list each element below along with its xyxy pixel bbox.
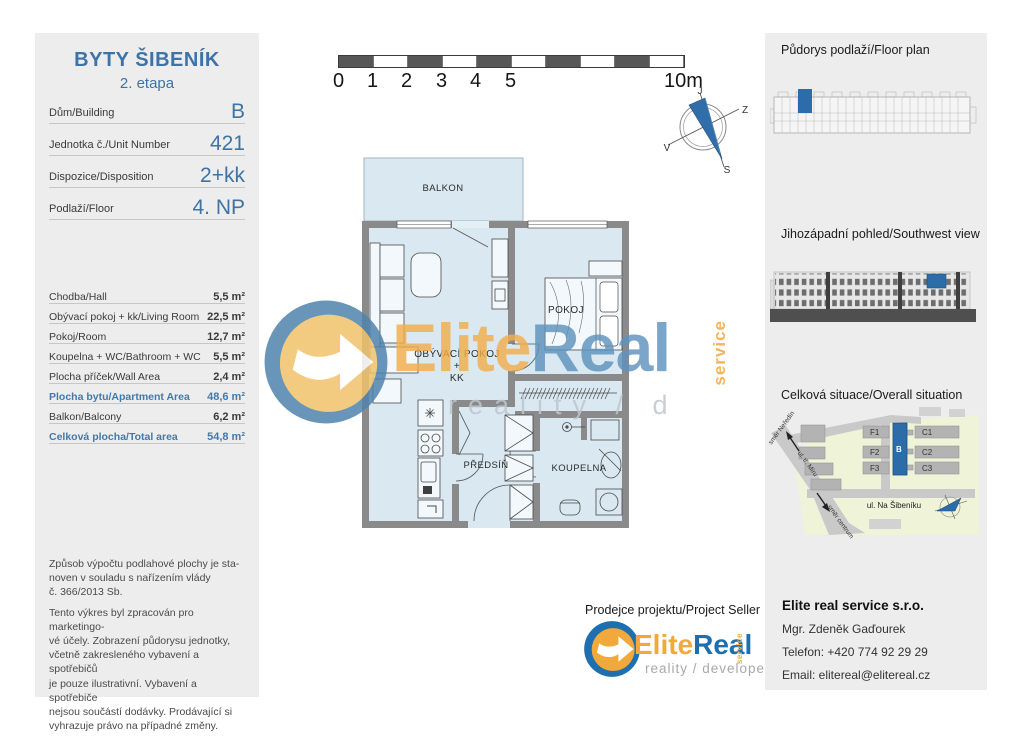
brand-elite: Elite — [634, 629, 693, 660]
contact-company: Elite real service s.r.o. — [782, 598, 930, 613]
info-row-building: Dům/Building B — [49, 101, 245, 124]
disclaimer-paragraph: Způsob výpočtu podlahové plochy je sta- … — [49, 557, 247, 599]
section-title-floor-plan: Půdorys podlaží/Floor plan — [781, 43, 930, 57]
room-label-kk: KK — [450, 373, 464, 384]
area-value: 5,5 m² — [213, 351, 245, 363]
building-label-c1: C1 — [922, 428, 933, 437]
legal-disclaimer: Způsob výpočtu podlahové plochy je sta- … — [49, 557, 247, 740]
site-map: F1 F2 F3 C1 C2 C3 B ul. Na Šibeníku směr… — [769, 405, 981, 557]
scale-bar-segments — [338, 55, 685, 68]
info-label: Dispozice/Disposition — [49, 171, 154, 186]
building-label-f2: F2 — [870, 448, 880, 457]
building-label-c2: C2 — [922, 448, 933, 457]
watermark-service: service — [710, 320, 730, 386]
area-value: 12,7 m² — [207, 331, 245, 343]
table-row-total-area: Celková plocha/Total area 54,8 m² — [49, 424, 245, 444]
coffee-table — [411, 253, 441, 297]
building-label-f3: F3 — [870, 464, 880, 473]
room-label-plus: + — [454, 361, 460, 372]
table-row: Balkon/Balcony 6,2 m² — [49, 404, 245, 424]
disclaimer-paragraph: Tento výkres byl zpracován pro marketing… — [49, 606, 247, 733]
apartment-floor-plan: BALKON OBÝVACÍ POKOJ + KK POKOJ PŘEDSÍŇ … — [353, 149, 643, 534]
room-label-bedroom: POKOJ — [548, 305, 584, 316]
scale-tick: 1 — [367, 70, 378, 93]
compass-label-west: Z — [742, 105, 748, 116]
compass-rose-icon: J Z V S — [660, 85, 755, 190]
contact-phone: Telefon: +420 774 92 29 29 — [782, 645, 930, 659]
seller-heading: Prodejce projektu/Project Seller — [585, 603, 760, 617]
scale-bar: 0 1 2 3 4 5 10m — [338, 55, 685, 95]
brand-tagline: reality / developer — [645, 661, 771, 676]
location-panel: Půdorys podlaží/Floor plan Jihozápadní p… — [765, 33, 987, 690]
stove-icon — [425, 408, 435, 418]
shelf — [589, 261, 622, 276]
seller-brand: EliteReal service — [634, 631, 752, 659]
room-label-hall: PŘEDSÍŇ — [463, 460, 508, 471]
info-value: 421 — [210, 133, 245, 154]
info-value: B — [231, 101, 245, 122]
info-row-disposition: Dispozice/Disposition 2+kk — [49, 165, 245, 188]
scale-tick: 5 — [505, 70, 516, 93]
building-label-c3: C3 — [922, 464, 933, 473]
scale-tick: 4 — [470, 70, 481, 93]
compass-label-south: J — [698, 86, 703, 97]
info-row-floor: Podlaží/Floor 4. NP — [49, 197, 245, 220]
room-label-balcony: BALKON — [423, 183, 464, 194]
table-row: Plocha příček/Wall Area 2,4 m² — [49, 364, 245, 384]
scale-tick: 2 — [401, 70, 412, 93]
info-label: Dům/Building — [49, 107, 114, 122]
contact-block: Elite real service s.r.o. Mgr. Zdeněk Ga… — [782, 598, 930, 691]
unit-info-panel: BYTY ŠIBENÍK 2. etapa Dům/Building B Jed… — [35, 33, 259, 697]
info-label: Podlaží/Floor — [49, 203, 114, 218]
sink-tap — [423, 486, 432, 494]
area-label: Celková plocha/Total area — [49, 431, 178, 443]
info-row-unit-number: Jednotka č./Unit Number 421 — [49, 133, 245, 156]
area-value: 5,5 m² — [213, 291, 245, 303]
tv-cabinet — [492, 239, 508, 309]
area-value: 6,2 m² — [213, 411, 245, 423]
area-value: 54,8 m² — [207, 431, 245, 443]
building-label-b: B — [896, 445, 902, 454]
contact-person: Mgr. Zdeněk Gaďourek — [782, 622, 930, 636]
area-label: Koupelna + WC/Bathroom + WC — [49, 351, 201, 363]
highlighted-unit-marker — [927, 274, 946, 288]
area-label: Pokoj/Room — [49, 331, 106, 343]
info-value: 2+kk — [200, 165, 245, 186]
contact-email: Email: elitereal@elitereal.cz — [782, 668, 930, 682]
scale-tick: 0 — [333, 70, 344, 93]
area-value: 22,5 m² — [207, 311, 245, 323]
room-label-bathroom: KOUPELNA — [552, 463, 607, 474]
area-label: Plocha příček/Wall Area — [49, 371, 160, 383]
table-row: Pokoj/Room 12,7 m² — [49, 324, 245, 344]
area-value: 48,6 m² — [207, 391, 245, 403]
compass-label-east: V — [664, 143, 671, 154]
street-label: ul. Na Šibeníku — [867, 501, 921, 510]
table-row: Chodba/Hall 5,5 m² — [49, 284, 245, 304]
scale-bar-ticks: 0 1 2 3 4 5 10m — [338, 68, 685, 92]
area-label: Obývací pokoj + kk/Living Room — [49, 311, 199, 323]
scale-tick: 3 — [436, 70, 447, 93]
building-storey-diagram — [770, 81, 980, 147]
room-label-living: OBÝVACÍ POKOJ — [414, 347, 500, 360]
section-title-southwest-view: Jihozápadní pohled/Southwest view — [781, 227, 980, 241]
brand-service: service — [736, 633, 744, 664]
area-label: Balkon/Balcony — [49, 411, 121, 423]
table-row-apartment-area: Plocha bytu/Apartment Area 48,6 m² — [49, 384, 245, 404]
page-subtitle: 2. etapa — [49, 75, 245, 92]
page-title: BYTY ŠIBENÍK — [49, 49, 245, 72]
info-value: 4. NP — [192, 197, 245, 218]
table-row: Obývací pokoj + kk/Living Room 22,5 m² — [49, 304, 245, 324]
highlighted-unit-marker — [798, 89, 812, 113]
area-label: Chodba/Hall — [49, 291, 107, 303]
area-value: 2,4 m² — [213, 371, 245, 383]
compass-label-north: S — [724, 165, 731, 176]
building-label-f1: F1 — [870, 428, 880, 437]
area-table: Chodba/Hall 5,5 m² Obývací pokoj + kk/Li… — [49, 284, 245, 444]
info-label: Jednotka č./Unit Number — [49, 139, 170, 154]
table-row: Koupelna + WC/Bathroom + WC 5,5 m² — [49, 344, 245, 364]
building-elevation-diagram — [770, 266, 982, 328]
kitchen-line — [418, 400, 443, 518]
area-label: Plocha bytu/Apartment Area — [49, 391, 190, 403]
elitereal-logo-icon — [583, 620, 641, 678]
section-title-overall-situation: Celková situace/Overall situation — [781, 388, 962, 402]
